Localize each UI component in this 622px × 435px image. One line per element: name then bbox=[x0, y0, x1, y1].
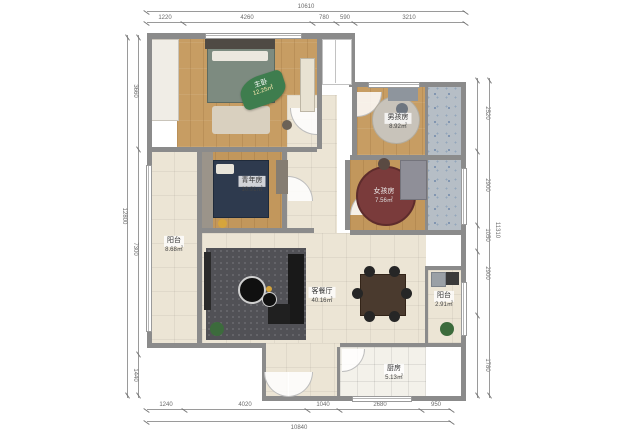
dim-left-seg-2: 1440 bbox=[132, 368, 138, 381]
label-youth-bedroom: 青年房 10.91㎡ bbox=[239, 176, 266, 194]
wall-right bbox=[461, 82, 466, 401]
label-balcony-left-area: 8.68㎡ bbox=[164, 247, 184, 255]
dim-left-seg-0: 3660 bbox=[132, 84, 138, 97]
washing-machine bbox=[431, 272, 446, 287]
wall-girl-south bbox=[350, 230, 461, 235]
wall-master-south bbox=[152, 147, 317, 152]
label-boy-name: 男孩房 bbox=[385, 113, 412, 124]
dim-bottom-seg-0: 1240 bbox=[159, 402, 172, 408]
boy-desk bbox=[388, 88, 418, 101]
dim-right-seg-line bbox=[477, 78, 478, 398]
wall-balcony-right-top bbox=[428, 266, 461, 270]
wall-balcony-right-west bbox=[425, 266, 428, 343]
label-kitchen: 厨房 5.13㎡ bbox=[384, 364, 404, 382]
youth-desk bbox=[276, 160, 288, 194]
dining-chair-3 bbox=[364, 311, 375, 322]
dim-top-seg-1: 4260 bbox=[240, 15, 253, 21]
wall-youth-south bbox=[202, 228, 314, 233]
dim-top-seg-2: 780 bbox=[319, 15, 329, 21]
label-kitchen-area: 5.13㎡ bbox=[384, 375, 404, 383]
dryer bbox=[446, 272, 459, 285]
dim-right-overall: 11310 bbox=[494, 222, 500, 238]
label-youth-area: 10.91㎡ bbox=[239, 187, 266, 195]
master-dresser bbox=[300, 58, 315, 112]
living-plant bbox=[210, 322, 224, 336]
youth-stool-yellow bbox=[218, 219, 227, 228]
dim-left-overall-line bbox=[127, 35, 128, 398]
girl-bed bbox=[400, 160, 427, 200]
dim-top-seg-line bbox=[147, 22, 465, 23]
wall-bottom-left bbox=[147, 343, 265, 348]
label-balcony-left-name: 阳台 bbox=[164, 236, 184, 247]
window-girl-east bbox=[461, 168, 467, 225]
dim-top-overall-line bbox=[147, 11, 465, 12]
dim-bottom-seg-3: 2680 bbox=[373, 402, 386, 408]
tv-console bbox=[204, 252, 211, 310]
dim-left-overall: 12800 bbox=[121, 208, 127, 225]
label-boy-area: 8.92㎡ bbox=[385, 124, 412, 132]
master-rug bbox=[212, 106, 270, 134]
wall-girl-west bbox=[345, 160, 350, 230]
label-balcony-right-name: 阳台 bbox=[434, 291, 454, 302]
dim-bottom-seg-2: 1040 bbox=[316, 402, 329, 408]
wall-bath-divider-top bbox=[425, 87, 428, 155]
closet-door-split bbox=[335, 39, 336, 83]
dim-bottom-seg-1: 4020 bbox=[238, 402, 251, 408]
youth-bed-pillow bbox=[216, 164, 234, 174]
label-girl-name: 女孩房 bbox=[371, 187, 398, 198]
master-bed-pillows bbox=[212, 51, 268, 61]
accent-pillow-gold bbox=[266, 286, 272, 292]
master-wardrobe-nook bbox=[150, 39, 179, 121]
dining-chair-4 bbox=[389, 311, 400, 322]
bathroom-bottom bbox=[428, 160, 461, 233]
label-living-name: 客餐厅 bbox=[309, 287, 336, 298]
wall-kitchen-west bbox=[337, 347, 340, 396]
sofa bbox=[288, 254, 304, 324]
dim-top-seg-4: 3210 bbox=[402, 15, 415, 21]
dining-chair-2 bbox=[389, 266, 400, 277]
master-stool bbox=[282, 120, 292, 130]
label-girl-area: 7.56㎡ bbox=[371, 198, 398, 206]
dining-chair-6 bbox=[401, 288, 412, 299]
dim-bottom-overall-line bbox=[147, 421, 451, 422]
dining-table bbox=[360, 274, 406, 316]
label-balcony-right-area: 2.91㎡ bbox=[434, 302, 454, 310]
coffee-table-small bbox=[262, 292, 277, 307]
label-living-area: 40.16㎡ bbox=[309, 298, 336, 306]
closet-doors-top bbox=[322, 39, 352, 85]
dining-chair-1 bbox=[364, 266, 375, 277]
dim-left-seg-line bbox=[138, 35, 139, 398]
wall-kitchen-north bbox=[340, 343, 466, 347]
floor-plan-canvas: 10610 1220 4260 780 590 3210 1240 4020 1… bbox=[0, 0, 622, 435]
dim-top-seg-0: 1220 bbox=[158, 15, 171, 21]
girl-pouf bbox=[378, 158, 390, 170]
label-kitchen-name: 厨房 bbox=[384, 364, 404, 375]
dining-chair-5 bbox=[352, 288, 363, 299]
balcony-plant bbox=[440, 322, 454, 336]
dim-bottom-overall: 10840 bbox=[291, 425, 308, 431]
sofa-chaise bbox=[268, 304, 290, 324]
master-bed-headboard bbox=[205, 39, 275, 49]
window-balcony-left bbox=[146, 165, 152, 332]
window-kitchen-south bbox=[352, 396, 412, 402]
label-living-dining: 客餐厅 40.16㎡ bbox=[309, 287, 336, 305]
label-balcony-left: 阳台 8.68㎡ bbox=[164, 236, 184, 254]
youth-headboard-wall bbox=[202, 152, 213, 228]
dim-left-seg-1: 7300 bbox=[132, 242, 138, 255]
bathroom-top bbox=[428, 87, 461, 155]
dim-bottom-seg-line bbox=[147, 409, 451, 410]
label-youth-name: 青年房 bbox=[239, 176, 266, 187]
label-girl-bedroom: 女孩房 7.56㎡ bbox=[371, 187, 398, 205]
label-boy-bedroom: 男孩房 8.92㎡ bbox=[385, 113, 412, 131]
dim-top-seg-3: 590 bbox=[340, 15, 350, 21]
wall-foyer-left bbox=[262, 343, 266, 398]
window-balcony-right-east bbox=[461, 282, 467, 336]
label-balcony-right: 阳台 2.91㎡ bbox=[434, 291, 454, 309]
dim-right-overall-line bbox=[489, 78, 490, 398]
dim-bottom-seg-4: 950 bbox=[431, 402, 441, 408]
dim-top-overall: 10610 bbox=[298, 4, 315, 10]
